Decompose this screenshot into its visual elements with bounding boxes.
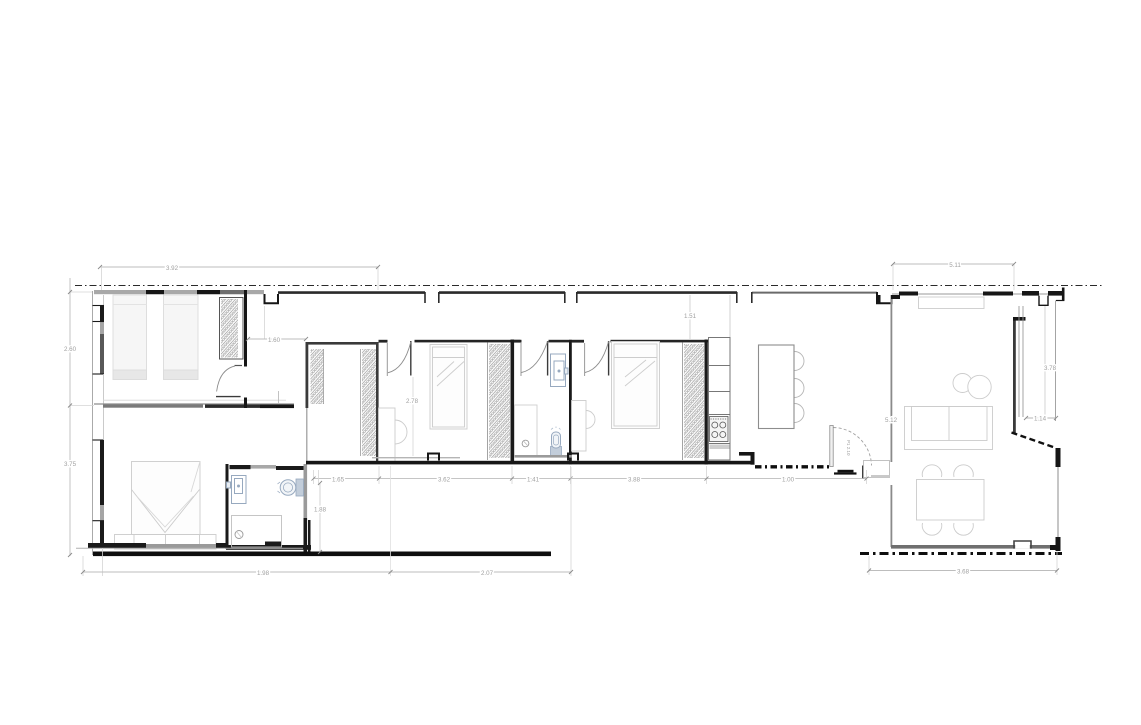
svg-text:2.78: 2.78 [406, 398, 419, 405]
svg-text:1.41: 1.41 [527, 477, 540, 484]
svg-text:5.12: 5.12 [885, 417, 898, 424]
svg-text:3.88: 3.88 [628, 477, 641, 484]
svg-text:1.98: 1.98 [257, 570, 270, 577]
svg-text:2.60: 2.60 [64, 346, 77, 353]
svg-text:3.68: 3.68 [957, 569, 970, 576]
svg-text:3.78: 3.78 [1044, 365, 1057, 372]
svg-text:1.00: 1.00 [782, 477, 795, 484]
svg-text:2.07: 2.07 [481, 570, 494, 577]
svg-text:1.65: 1.65 [332, 477, 345, 484]
svg-text:P1 2.10: P1 2.10 [846, 440, 851, 456]
svg-text:5.11: 5.11 [949, 262, 961, 269]
svg-text:1.14: 1.14 [1034, 416, 1047, 423]
svg-text:1.51: 1.51 [684, 313, 697, 320]
svg-text:3.75: 3.75 [64, 461, 77, 468]
svg-text:3.92: 3.92 [166, 265, 179, 272]
svg-text:1.60: 1.60 [268, 337, 281, 344]
svg-text:3.62: 3.62 [438, 477, 451, 484]
svg-text:1.88: 1.88 [314, 507, 327, 514]
